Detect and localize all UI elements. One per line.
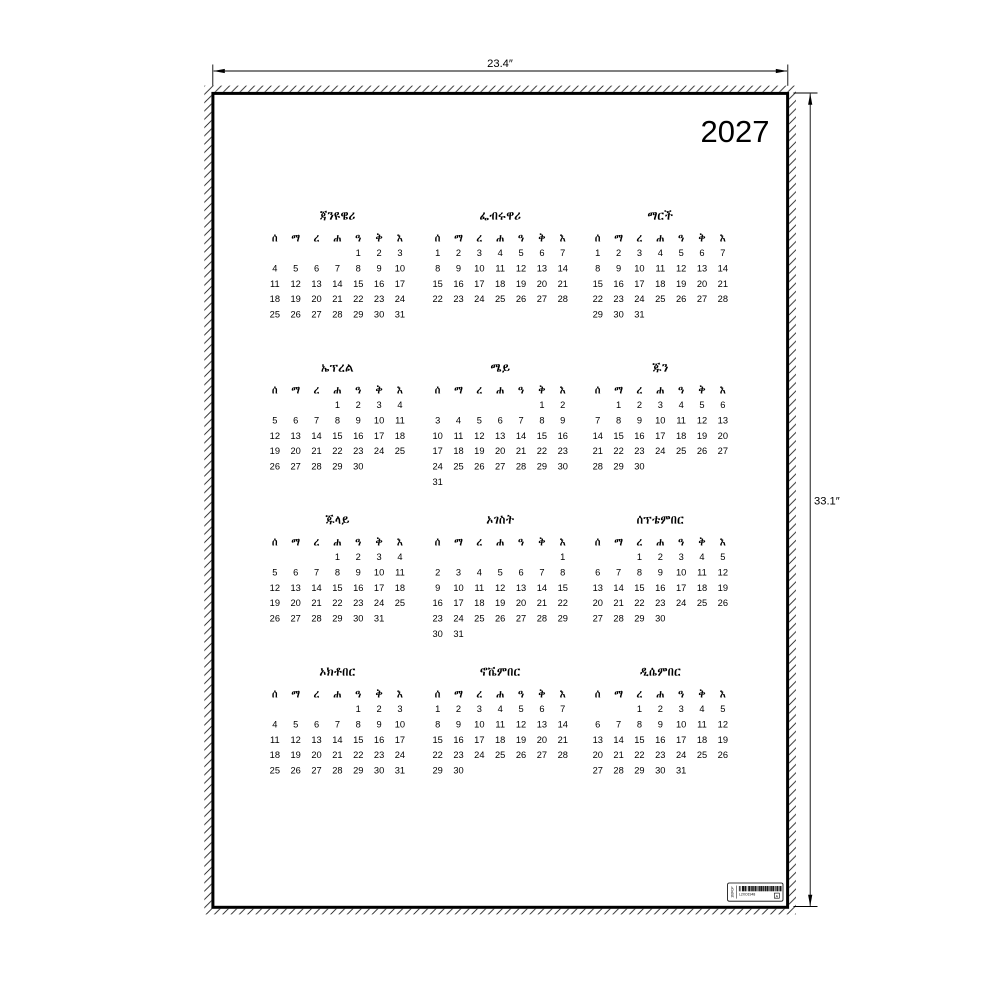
svg-text:2027: 2027 <box>701 114 770 149</box>
svg-text:33.1″: 33.1″ <box>814 496 840 508</box>
svg-text:L2XO1948: L2XO1948 <box>739 893 755 897</box>
svg-text:16JRoP: 16JRoP <box>730 886 734 897</box>
svg-text:23.4″: 23.4″ <box>487 58 513 70</box>
